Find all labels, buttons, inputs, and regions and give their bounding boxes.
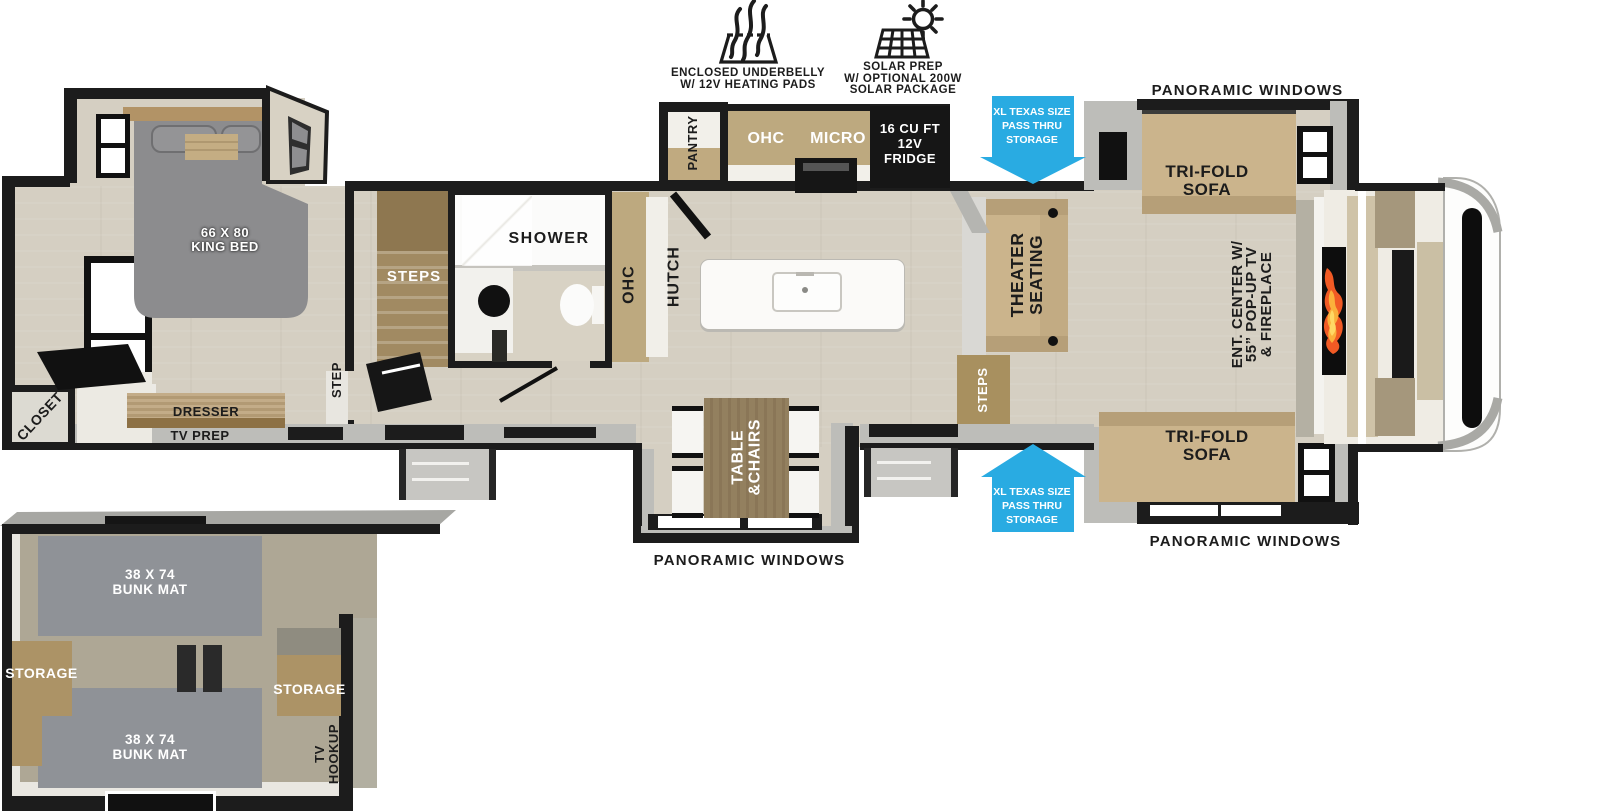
svg-text:XL TEXAS SIZE: XL TEXAS SIZE bbox=[993, 486, 1070, 498]
svg-text:PASS THRU: PASS THRU bbox=[1002, 120, 1062, 132]
svg-text:XL TEXAS SIZE: XL TEXAS SIZE bbox=[993, 106, 1070, 118]
svg-text:STORAGE: STORAGE bbox=[1006, 514, 1058, 526]
svg-text:PASS THRU: PASS THRU bbox=[1002, 500, 1062, 512]
svg-text:STORAGE: STORAGE bbox=[1006, 134, 1058, 146]
